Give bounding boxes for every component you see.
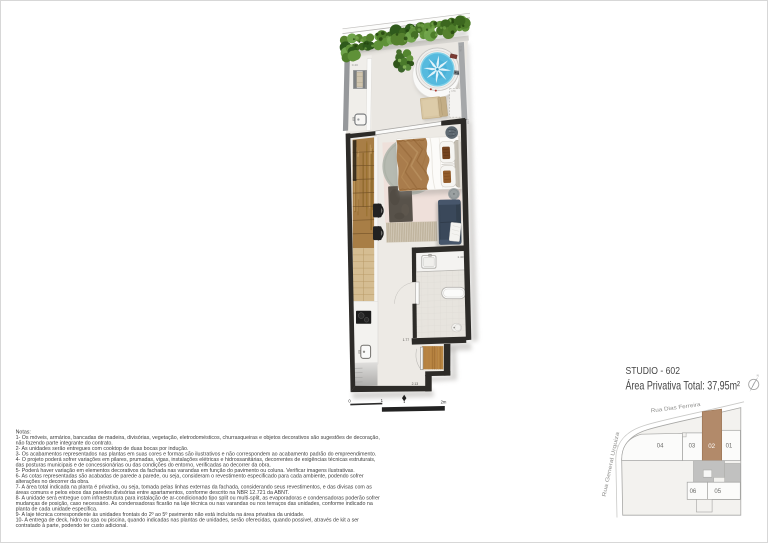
svg-text:2.26: 2.26 bbox=[459, 46, 463, 52]
svg-text:03: 03 bbox=[689, 444, 696, 450]
svg-text:1.77: 1.77 bbox=[403, 338, 410, 342]
svg-text:01: 01 bbox=[726, 444, 733, 450]
svg-text:1.40: 1.40 bbox=[457, 255, 463, 259]
svg-text:2m: 2m bbox=[441, 399, 447, 404]
svg-text:N: N bbox=[757, 373, 759, 377]
svg-text:Área Privativa Total: 37,95m²: Área Privativa Total: 37,95m² bbox=[626, 379, 741, 393]
svg-text:02: 02 bbox=[708, 443, 715, 450]
svg-text:0.40: 0.40 bbox=[352, 63, 358, 67]
svg-text:2.13: 2.13 bbox=[412, 382, 419, 386]
svg-text:04: 04 bbox=[657, 444, 664, 450]
svg-text:contratado à parte, podendo te: contratado à parte, podendo ter custo ad… bbox=[16, 523, 128, 529]
svg-text:06: 06 bbox=[690, 489, 697, 495]
svg-text:STUDIO - 602: STUDIO - 602 bbox=[626, 366, 681, 377]
svg-text:05: 05 bbox=[714, 489, 721, 495]
svg-text:0.55: 0.55 bbox=[451, 91, 456, 93]
